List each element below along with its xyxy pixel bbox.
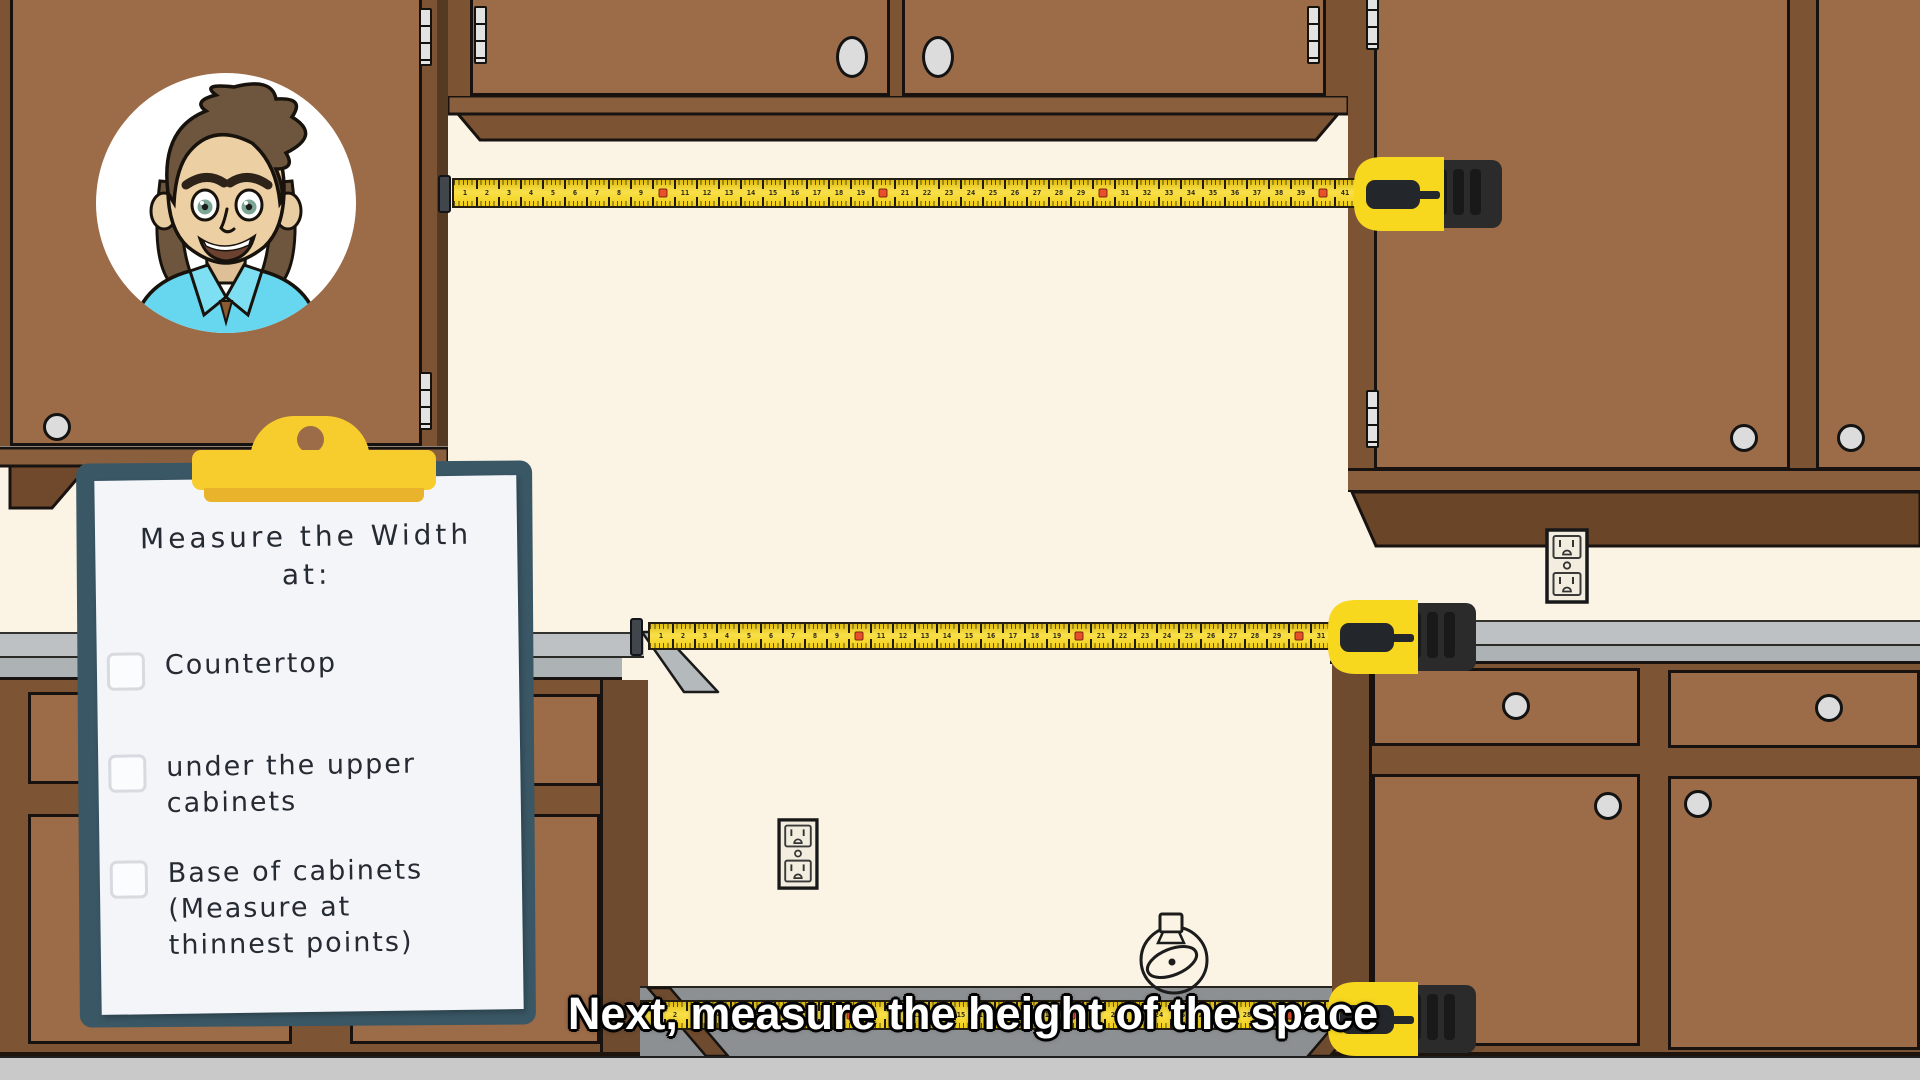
door-hinge (1307, 6, 1320, 64)
presenter-avatar (94, 71, 358, 335)
clipboard-paper: Measure the Width at: Countertop under t… (94, 475, 523, 1015)
upper-cabinet-right-soffit (1348, 492, 1920, 550)
power-outlet-icon (1545, 528, 1589, 604)
clipboard-clip (204, 488, 424, 502)
upper-cabinet-middle-base (448, 96, 1348, 144)
cabinet-knob (1684, 790, 1712, 818)
door-hinge (1366, 390, 1379, 448)
cabinet-knob (1730, 424, 1758, 452)
clipboard-clip-hole (297, 426, 324, 453)
cabinet-knob (43, 413, 71, 441)
cabinet-door (1374, 0, 1790, 470)
tape-measure-body (1352, 157, 1504, 231)
kitchen-scene: 1234567891112131415161718192122232425262… (0, 0, 1920, 1080)
door-hinge (419, 8, 432, 66)
tape-hook (438, 175, 451, 213)
door-hinge (419, 372, 432, 430)
cabinet-door (1668, 776, 1920, 1050)
tape-measure-blade-top: 1234567891112131415161718192122232425262… (452, 178, 1360, 208)
checklist-title: Measure the Width at: (95, 515, 518, 597)
cabinet-knob (1815, 694, 1843, 722)
upper-cabinet-right-rail (1348, 468, 1920, 492)
cabinet-knob (922, 36, 954, 78)
cabinet-door (902, 0, 1326, 96)
cabinet-door (470, 0, 890, 96)
cabinet-door (1816, 0, 1920, 470)
cabinet-knob (1837, 424, 1865, 452)
checklist-item-label: Base of cabinets (Measure at thinnest po… (168, 852, 425, 964)
door-hinge (474, 6, 487, 64)
door-hinge (1366, 0, 1379, 50)
checklist-item-label: under the upper cabinets (166, 747, 417, 822)
cabinet-knob (836, 36, 868, 78)
cabinet-knob (1594, 792, 1622, 820)
checkbox-countertop (107, 652, 146, 691)
gas-connector-icon (1130, 912, 1214, 996)
tape-measure-body (1326, 600, 1478, 674)
checklist-item-label: Countertop (165, 646, 338, 684)
cabinet-side-edge (437, 0, 448, 446)
drawer-front (1668, 670, 1920, 748)
power-outlet-icon (776, 818, 820, 890)
tape-hook (630, 618, 643, 656)
cabinet-knob (1502, 692, 1530, 720)
floor (0, 1056, 1920, 1080)
checkbox-under-upper-cabinets (108, 754, 147, 793)
tape-measure-blade-middle: 1234567891112131415161718192122232425262… (648, 622, 1334, 650)
checkbox-base-of-cabinets (110, 860, 149, 899)
subtitle-caption: Next, measure the height of the space (568, 988, 1378, 1040)
clipboard-clip (192, 450, 436, 490)
